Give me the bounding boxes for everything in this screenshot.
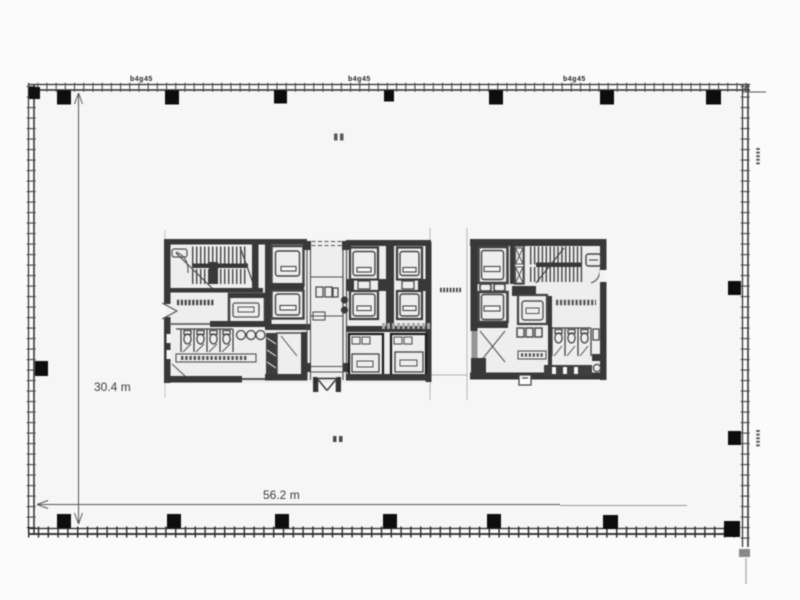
svg-text:56.2 m: 56.2 m	[263, 488, 300, 502]
svg-text:b4g45: b4g45	[348, 76, 371, 83]
svg-text:b4g45: b4g45	[563, 76, 586, 83]
svg-text:b4g45: b4g45	[130, 76, 153, 83]
svg-text:30.4 m: 30.4 m	[94, 380, 131, 394]
